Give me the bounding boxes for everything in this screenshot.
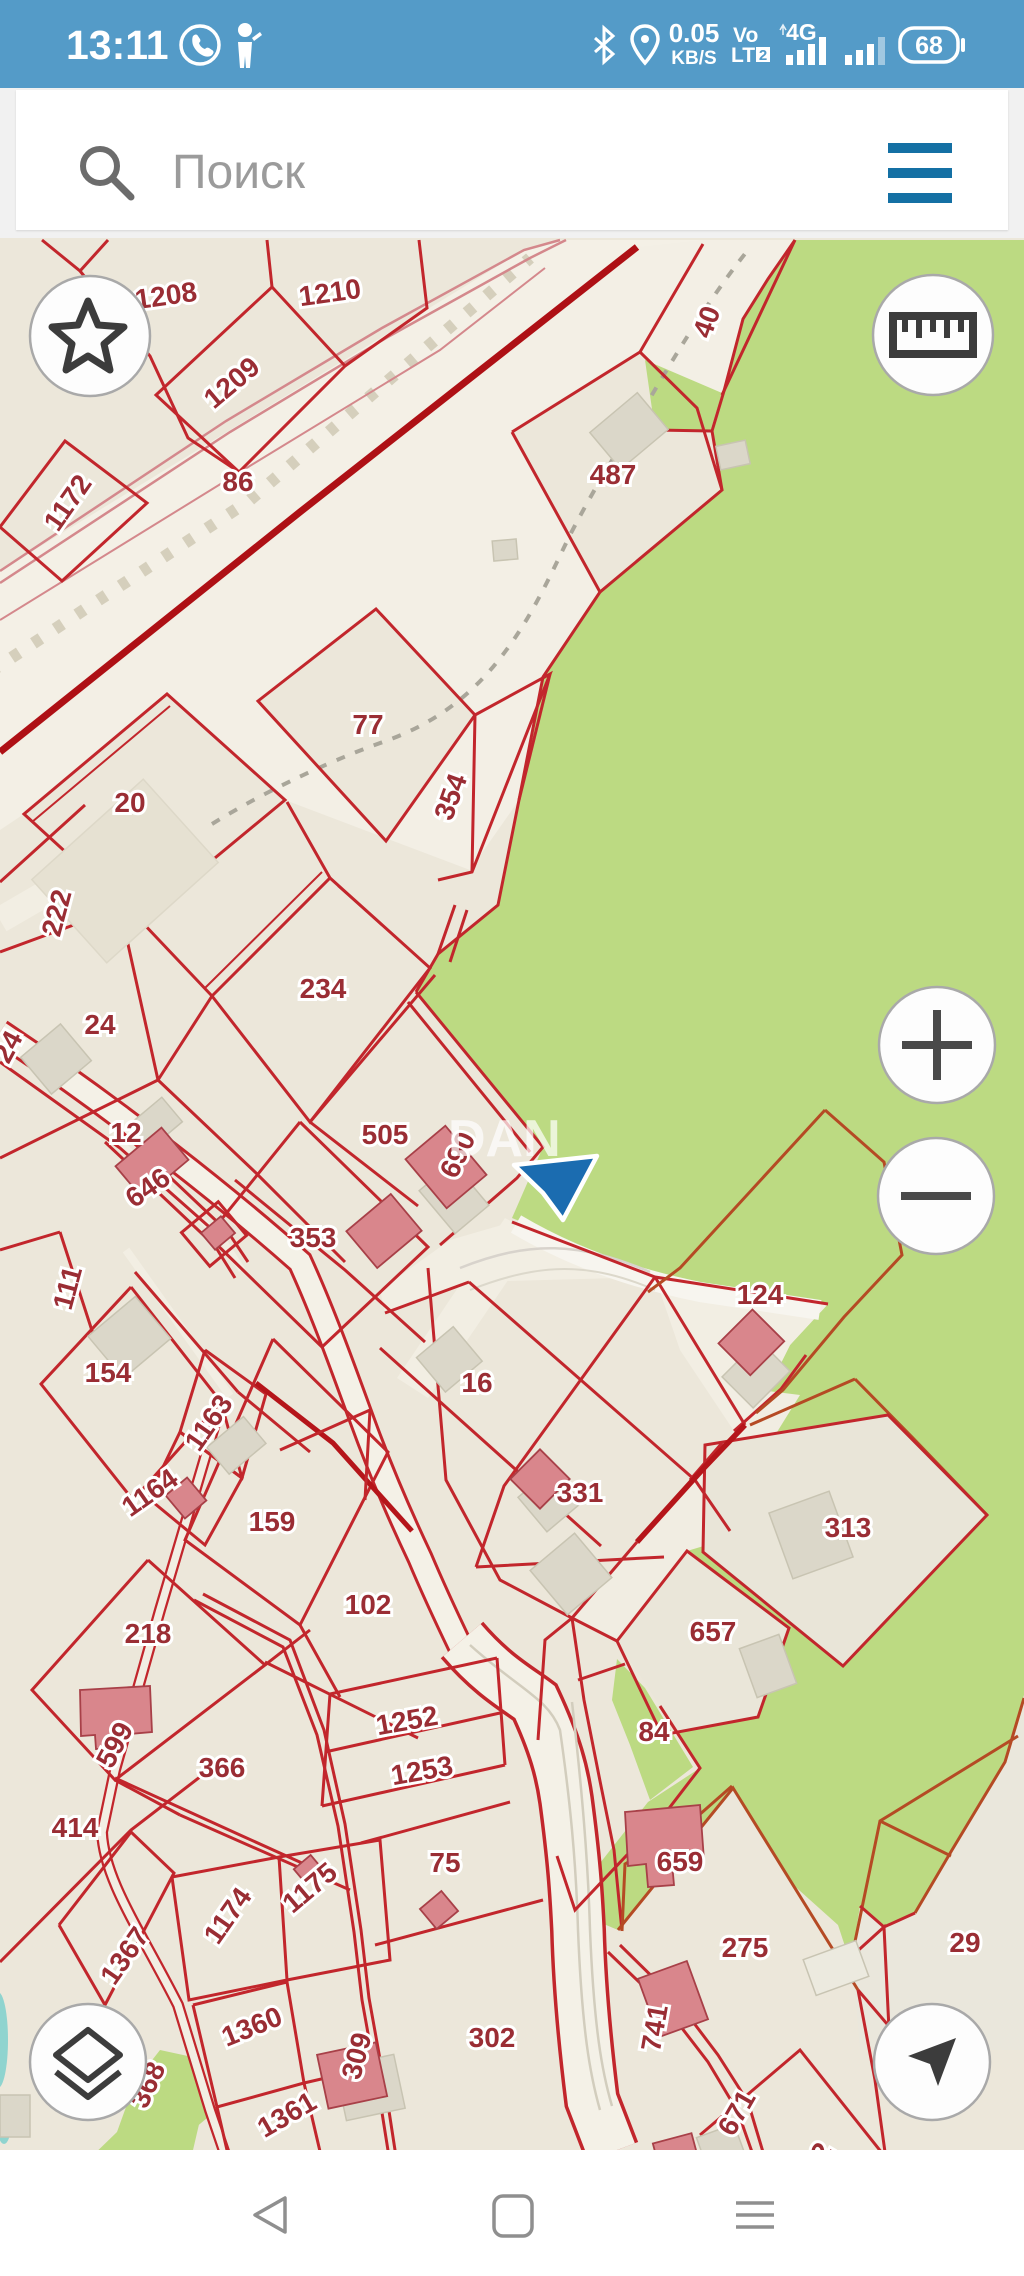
svg-text:2: 2 xyxy=(759,47,767,64)
svg-text:102: 102 xyxy=(345,1589,392,1620)
svg-text:331: 331 xyxy=(557,1477,604,1508)
svg-text:659: 659 xyxy=(657,1846,704,1877)
svg-text:154: 154 xyxy=(85,1357,132,1388)
svg-text:86: 86 xyxy=(222,466,253,497)
svg-text:366: 366 xyxy=(199,1752,246,1783)
svg-text:20: 20 xyxy=(114,787,145,818)
svg-text:353: 353 xyxy=(290,1222,337,1253)
svg-text:29: 29 xyxy=(949,1927,980,1958)
svg-text:414: 414 xyxy=(52,1812,99,1843)
svg-text:657: 657 xyxy=(690,1616,737,1647)
svg-text:77: 77 xyxy=(352,709,383,740)
svg-text:75: 75 xyxy=(429,1847,460,1878)
svg-text:12: 12 xyxy=(110,1117,141,1148)
svg-text:275: 275 xyxy=(722,1932,769,1963)
svg-text:505: 505 xyxy=(362,1119,409,1150)
svg-text:4G: 4G xyxy=(786,19,817,45)
svg-text:68: 68 xyxy=(915,32,943,60)
svg-text:218: 218 xyxy=(125,1618,172,1649)
svg-text:0.05: 0.05 xyxy=(669,18,720,48)
svg-text:124: 124 xyxy=(737,1279,784,1310)
svg-text:84: 84 xyxy=(638,1716,670,1747)
svg-text:24: 24 xyxy=(84,1009,116,1040)
svg-text:16: 16 xyxy=(461,1367,492,1398)
svg-text:302: 302 xyxy=(469,2022,516,2053)
svg-text:159: 159 xyxy=(249,1506,296,1537)
svg-text:313: 313 xyxy=(825,1512,872,1543)
svg-text:13:11: 13:11 xyxy=(66,22,169,68)
svg-text:KB/S: KB/S xyxy=(671,48,716,69)
svg-text:DAN: DAN xyxy=(448,1110,561,1168)
svg-text:234: 234 xyxy=(300,973,347,1004)
svg-text:487: 487 xyxy=(590,459,637,490)
svg-text:Поиск: Поиск xyxy=(172,146,306,199)
